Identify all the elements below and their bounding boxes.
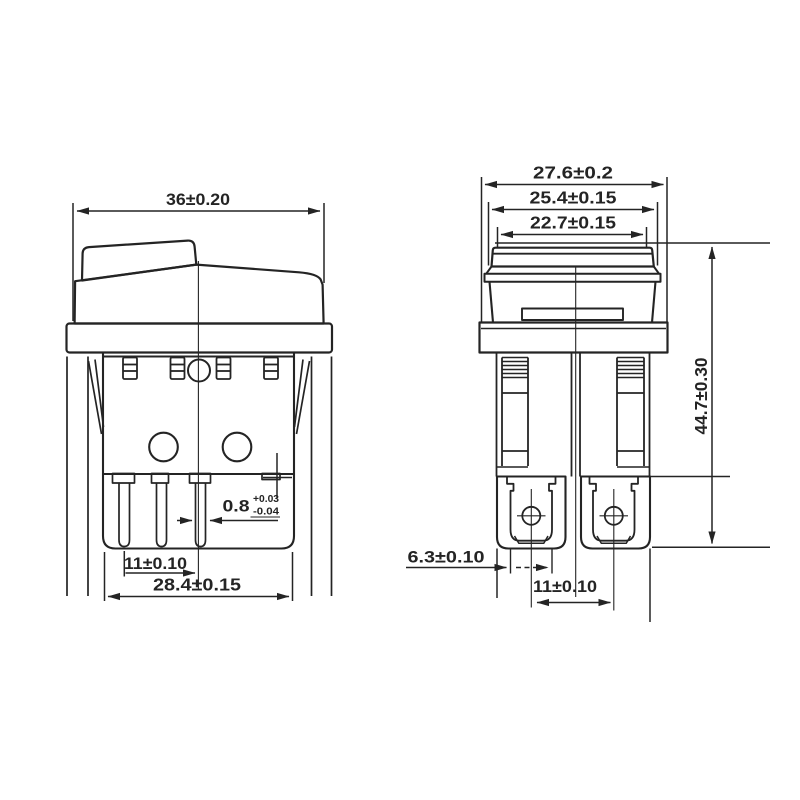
dim-side-rocker-width-label: 22.7±0.15 [530,213,616,233]
dim-front-pin-spacing-label: 11±0.10 [124,555,187,573]
dim-front-body-width-label: 28.4±0.15 [153,575,241,595]
dim-side-overall-height-label: 44.7±0.30 [691,357,711,434]
paper-background [0,0,800,800]
dim-front-pin-spacing: 11±0.10 [124,551,195,577]
dim-front-pin-thickness-lower-tol: -0.04 [253,507,279,518]
dim-side-terminal-width-label: 6.3±0.10 [408,548,485,567]
dim-side-terminal-spacing-label: 11±0.10 [533,577,597,596]
rocker-switch-dimension-drawing: 36±0.20 0.8 +0.03 -0.04 11±0.10 [0,0,800,800]
dim-front-pin-thickness-upper-tol: +0.03 [253,494,279,505]
dim-side-flange-width-label: 27.6±0.2 [533,163,613,183]
dim-front-pin-thickness-label: 0.8 [223,497,250,516]
dim-side-bezel-width-label: 25.4±0.15 [530,188,617,208]
drawing-canvas: 36±0.20 0.8 +0.03 -0.04 11±0.10 [0,0,800,800]
dim-front-width-label: 36±0.20 [166,190,230,209]
